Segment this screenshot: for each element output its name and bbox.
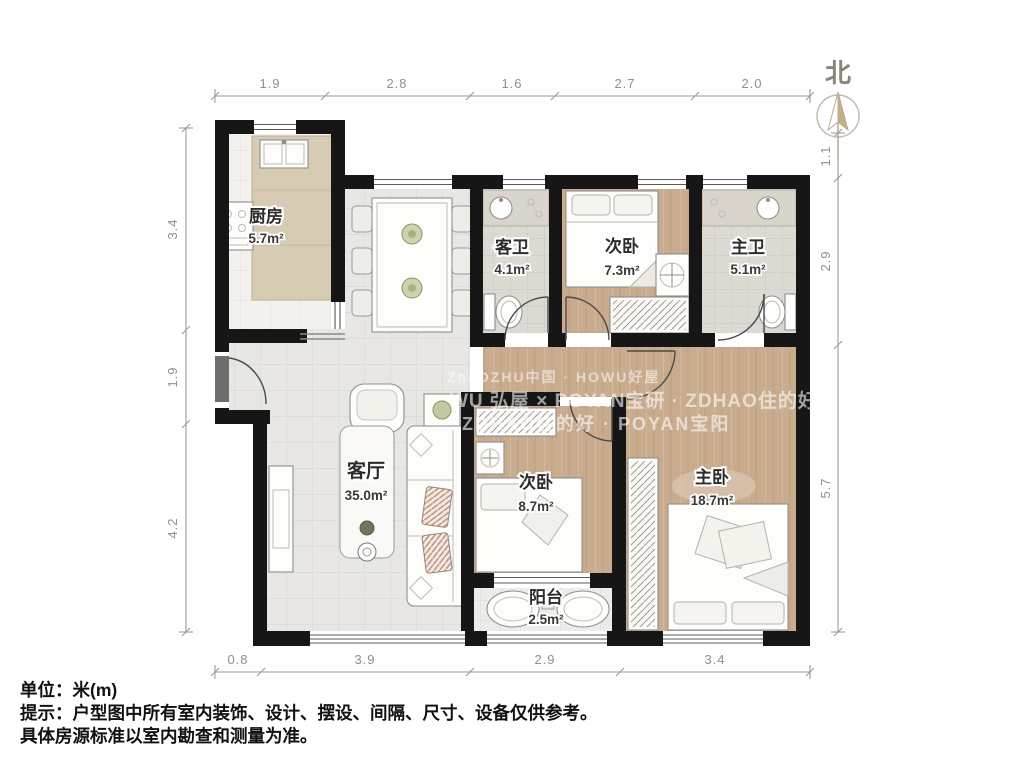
floor-plan-page: ZhaOZHU中国 · HOWU好屋 WU 弘屋 × POYAN宝研 · ZDH… <box>0 0 1024 768</box>
dim-right-2: 2.9 <box>818 250 833 271</box>
wardrobe <box>610 297 689 333</box>
room-label-kitchen: 厨房 <box>249 206 283 226</box>
dim-left-3: 4.2 <box>165 517 180 538</box>
bed-master <box>668 504 788 630</box>
watermark-line1: ZhaOZHU中国 · HOWU好屋 <box>447 369 660 385</box>
room-label-master-bedroom: 主卧 <box>695 467 729 487</box>
side-table <box>656 254 689 296</box>
window <box>487 631 607 646</box>
footer-notes: 单位：米(m) 提示：户型图中所有室内装饰、设计、摆设、间隔、尺寸、设备仅供参考… <box>20 679 740 748</box>
dim-right-1: 1.1 <box>818 145 833 166</box>
room-area-bedroom-second: 8.7m² <box>518 499 554 514</box>
room-label-bedroom-second: 次卧 <box>519 472 553 492</box>
sofa-cushion <box>421 486 452 527</box>
bed-second <box>476 478 582 572</box>
dim-bottom-2: 3.9 <box>354 652 375 667</box>
window <box>703 175 747 189</box>
room-area-master-bath: 5.1m² <box>730 262 766 277</box>
dimension-top: 1.9 2.8 1.6 2.7 2.0 <box>211 76 814 103</box>
dim-left-2: 1.9 <box>165 366 180 387</box>
dim-bottom-1: 0.8 <box>227 652 248 667</box>
dimension-right: 1.1 2.9 5.7 <box>818 129 845 636</box>
room-label-bedroom-top: 次卧 <box>605 236 639 256</box>
guest-bath-vanity <box>483 190 549 226</box>
master-bath-vanity <box>702 190 796 226</box>
dim-top-3: 1.6 <box>501 76 522 91</box>
dim-top-2: 2.8 <box>386 76 407 91</box>
disclaimer-line1: 提示：户型图中所有室内装饰、设计、摆设、间隔、尺寸、设备仅供参考。 <box>20 702 740 725</box>
room-label-guest-bath: 客卫 <box>494 237 529 257</box>
kitchen-sink-icon <box>260 140 308 169</box>
armchair <box>350 384 404 432</box>
window <box>254 120 296 134</box>
dim-top-1: 1.9 <box>259 76 280 91</box>
dimension-left: 3.4 1.9 4.2 <box>165 124 193 636</box>
sofa <box>407 426 467 606</box>
room-area-master-bedroom: 18.7m² <box>691 493 734 508</box>
room-label-balcony: 阳台 <box>529 587 563 607</box>
unit-note: 单位：米(m) <box>20 679 740 702</box>
room-area-bedroom-top: 7.3m² <box>604 263 640 278</box>
watermark-line3: ZDHAO住的好 · POYAN宝阳 <box>462 413 730 434</box>
dim-top-4: 2.7 <box>614 76 635 91</box>
compass-north-icon: 北 <box>817 58 859 160</box>
window <box>374 175 452 189</box>
room-area-kitchen: 5.7m² <box>248 231 284 246</box>
dim-bottom-4: 3.4 <box>704 652 725 667</box>
dim-left-1: 3.4 <box>165 218 180 239</box>
dim-right-3: 5.7 <box>818 477 833 498</box>
balcony-glazing <box>494 573 590 588</box>
window <box>310 631 465 646</box>
dim-top-5: 2.0 <box>741 76 762 91</box>
room-area-balcony: 2.5m² <box>528 612 564 627</box>
room-label-living: 客厅 <box>347 459 385 482</box>
window <box>503 175 545 189</box>
watermark-line2: WU 弘屋 × POYAN宝研 · ZDHAO住的好 <box>450 389 818 412</box>
entry-door-panel <box>215 356 229 402</box>
sofa-cushion <box>422 533 452 574</box>
toilet-icon <box>484 294 522 330</box>
north-label: 北 <box>825 58 851 88</box>
window <box>663 631 763 646</box>
dim-bottom-3: 2.9 <box>534 652 555 667</box>
room-area-living: 35.0m² <box>345 488 388 503</box>
nightstand <box>476 442 504 474</box>
dimension-bottom: 0.8 3.9 2.9 3.4 <box>211 652 814 679</box>
window <box>638 175 686 189</box>
room-label-master-bath: 主卫 <box>731 237 765 257</box>
floor-plan: ZhaOZHU中国 · HOWU好屋 WU 弘屋 × POYAN宝研 · ZDH… <box>0 0 1024 768</box>
room-area-guest-bath: 4.1m² <box>494 262 530 277</box>
disclaimer-line2: 具体房源标准以室内勘查和测量为准。 <box>20 725 740 748</box>
wardrobe <box>628 458 658 630</box>
dining-table <box>352 198 472 332</box>
tv-stand <box>269 466 293 572</box>
